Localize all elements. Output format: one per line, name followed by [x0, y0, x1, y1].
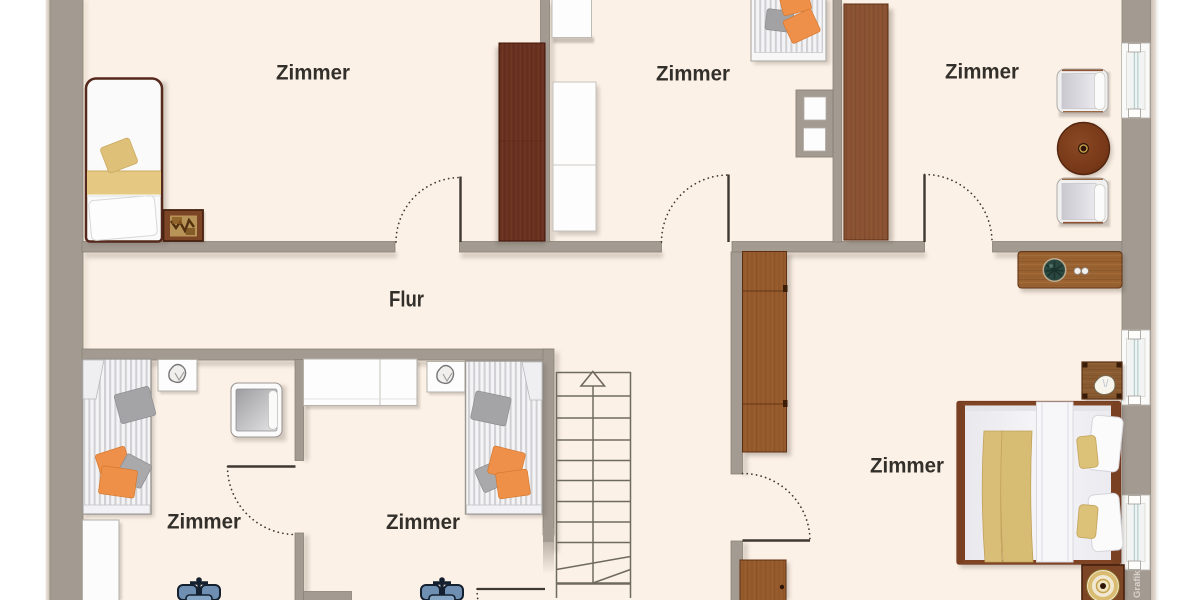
svg-text:Grafik: Grafik	[1132, 570, 1143, 598]
svg-text:Zimmer: Zimmer	[386, 510, 461, 534]
svg-text:Zimmer: Zimmer	[656, 62, 731, 86]
svg-text:Zimmer: Zimmer	[945, 60, 1020, 84]
svg-text:Flur: Flur	[389, 287, 424, 312]
svg-text:Zimmer: Zimmer	[276, 61, 351, 85]
svg-text:Zimmer: Zimmer	[870, 454, 945, 478]
svg-text:Zimmer: Zimmer	[167, 510, 242, 534]
